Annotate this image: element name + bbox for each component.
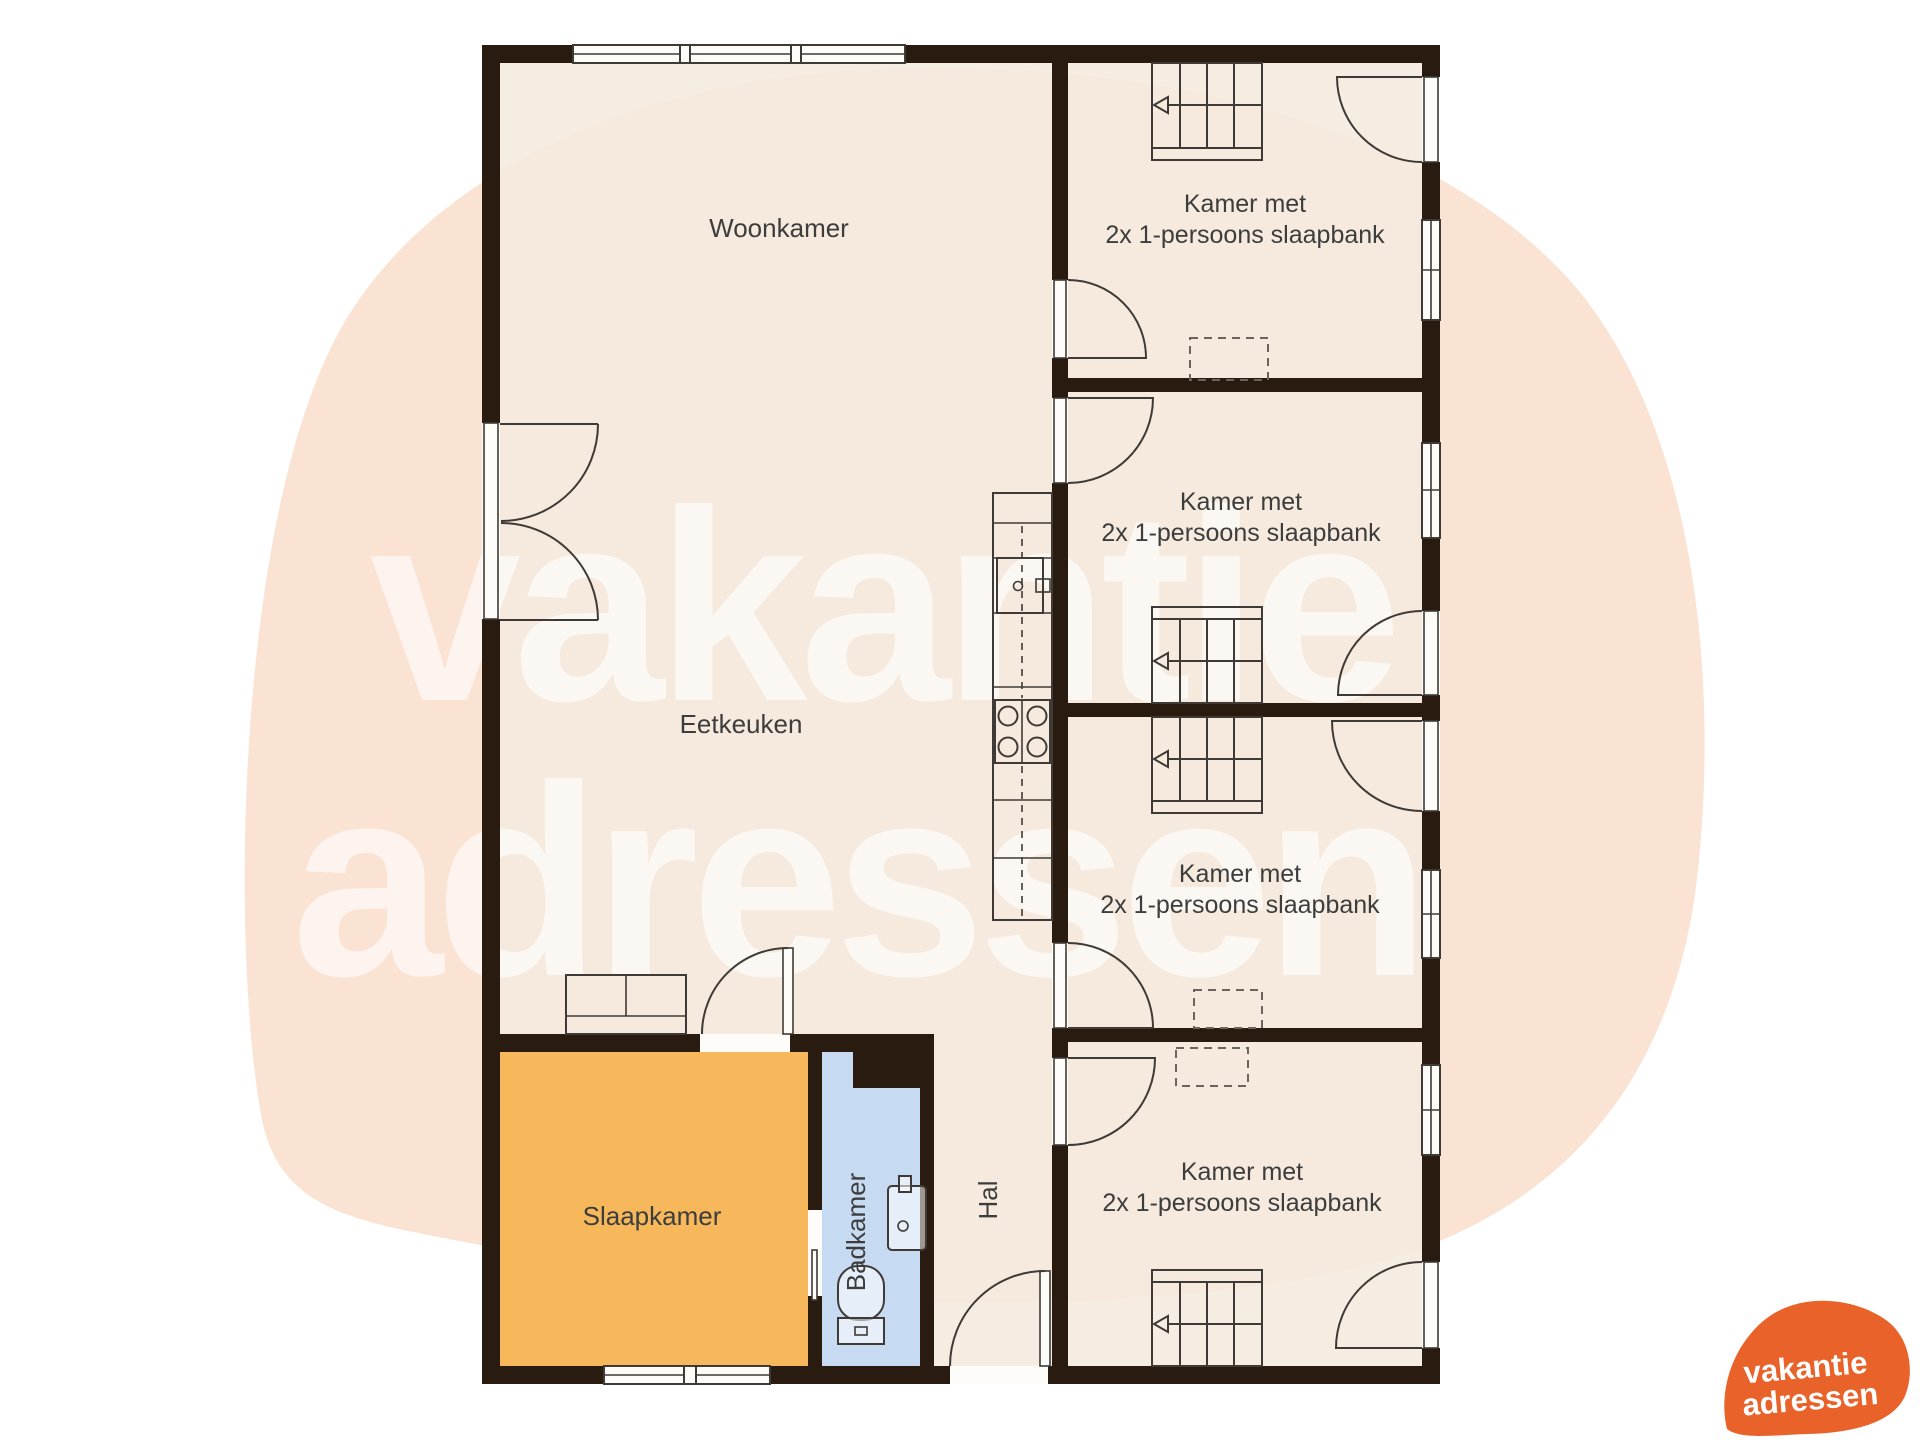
svg-text:2x 1-persoons slaapbank: 2x 1-persoons slaapbank [1102, 1189, 1382, 1217]
label-slaapkamer: Slaapkamer [583, 1201, 722, 1231]
floorplan-canvas: vakantie adressen [0, 0, 1920, 1440]
svg-text:2x 1-persoons slaapbank: 2x 1-persoons slaapbank [1105, 221, 1385, 249]
window-room1-right [1422, 220, 1440, 320]
label-badkamer: Badkamer [841, 1172, 871, 1291]
door-badkamer-sliding [808, 1210, 822, 1300]
svg-text:2x 1-persoons slaapbank: 2x 1-persoons slaapbank [1101, 519, 1381, 547]
logo[interactable]: vakantie adressen [1724, 1301, 1910, 1436]
window-slaapkamer-bottom [604, 1366, 770, 1384]
label-hal: Hal [973, 1180, 1003, 1219]
label-eetkeuken: Eetkeuken [680, 709, 803, 739]
window-room2-right [1422, 443, 1440, 538]
wall-left [482, 45, 500, 1384]
wall-badkamer-notch [853, 1052, 920, 1088]
window-top [573, 45, 905, 63]
svg-text:Kamer met: Kamer met [1184, 190, 1306, 218]
wall-slaapkamer-badkamer [808, 1052, 822, 1366]
svg-text:Kamer met: Kamer met [1180, 488, 1302, 516]
svg-text:Kamer met: Kamer met [1181, 1158, 1303, 1186]
window-room4-right [1422, 1065, 1440, 1155]
window-room3-right [1422, 870, 1440, 958]
svg-text:Kamer met: Kamer met [1179, 860, 1301, 888]
wall-central [1052, 45, 1068, 1366]
wall-divider-room3-4 [1068, 1028, 1422, 1042]
wall-divider-room2-3 [1068, 703, 1422, 717]
floorplan-page: vakantie adressen [0, 0, 1920, 1440]
label-woonkamer: Woonkamer [709, 213, 849, 243]
bathroom-sink-icon [888, 1176, 926, 1250]
svg-text:2x 1-persoons slaapbank: 2x 1-persoons slaapbank [1100, 891, 1380, 919]
